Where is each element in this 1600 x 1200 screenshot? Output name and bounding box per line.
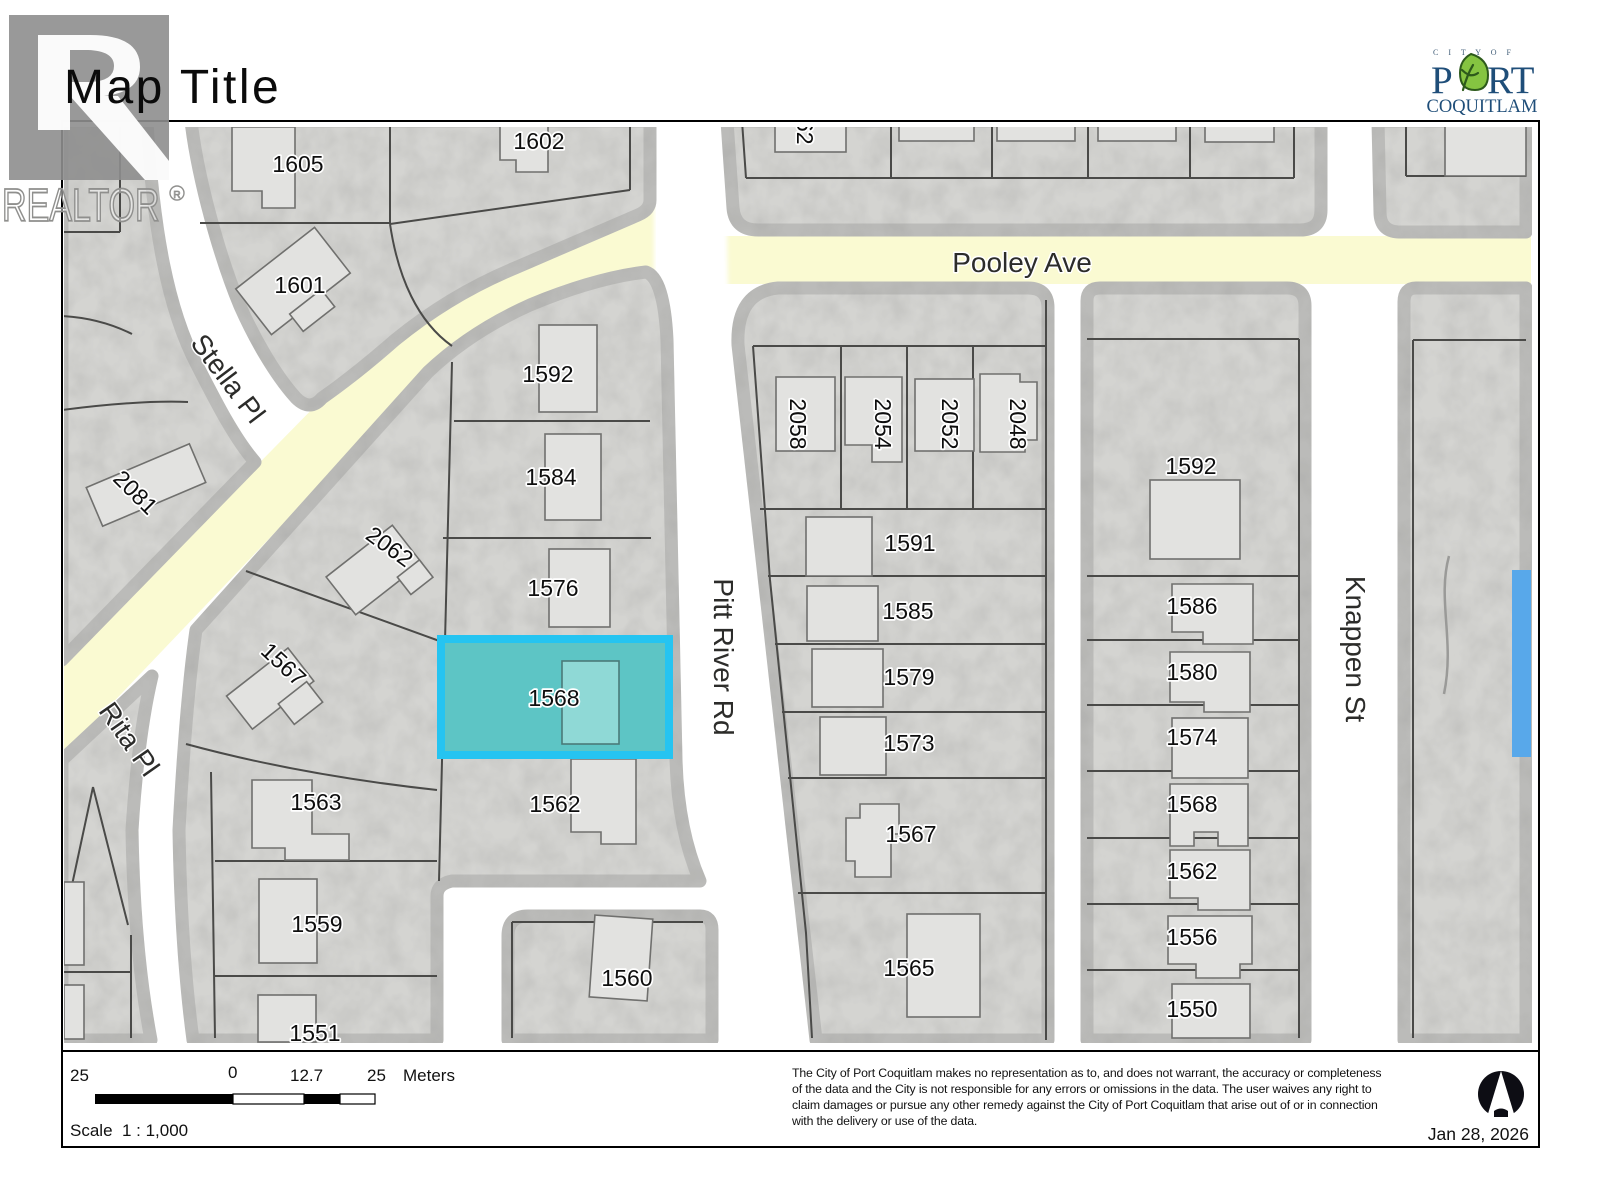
svg-text:1573: 1573: [883, 730, 934, 756]
svg-text:1584: 1584: [525, 464, 576, 490]
svg-text:1592: 1592: [1165, 453, 1216, 479]
svg-text:of the data and the City is no: of the data and the City is not responsi…: [792, 1082, 1372, 1096]
svg-text:0: 0: [228, 1063, 237, 1082]
svg-text:The City of Port Coquitlam mak: The City of Port Coquitlam makes no repr…: [792, 1066, 1381, 1080]
svg-text:2054: 2054: [870, 398, 896, 449]
svg-text:2048: 2048: [1005, 398, 1031, 449]
svg-text:1559: 1559: [291, 911, 342, 937]
svg-text:1568: 1568: [1166, 791, 1217, 817]
svg-text:2058: 2058: [785, 398, 811, 449]
svg-text:1586: 1586: [1166, 593, 1217, 619]
svg-text:1585: 1585: [882, 598, 933, 624]
svg-text:RT: RT: [1487, 59, 1535, 102]
svg-text:1580: 1580: [1166, 659, 1217, 685]
svg-text:25: 25: [70, 1066, 89, 1085]
svg-text:2052: 2052: [937, 398, 963, 449]
svg-text:Pooley Ave: Pooley Ave: [952, 247, 1092, 278]
svg-text:1568: 1568: [528, 685, 579, 711]
svg-text:1551: 1551: [289, 1020, 340, 1046]
svg-text:1574: 1574: [1166, 724, 1217, 750]
svg-text:Map Title: Map Title: [64, 61, 281, 114]
svg-text:1567: 1567: [885, 821, 936, 847]
svg-text:1602: 1602: [513, 128, 564, 154]
svg-text:1565: 1565: [883, 955, 934, 981]
svg-text:1591: 1591: [884, 530, 935, 556]
svg-text:COQUITLAM: COQUITLAM: [1427, 97, 1538, 117]
svg-text:1562: 1562: [1166, 858, 1217, 884]
svg-text:1560: 1560: [601, 965, 652, 991]
svg-text:Pitt River Rd: Pitt River Rd: [708, 578, 739, 735]
svg-text:1601: 1601: [274, 272, 325, 298]
svg-text:Meters: Meters: [403, 1066, 455, 1085]
svg-text:1550: 1550: [1166, 996, 1217, 1022]
svg-text:1562: 1562: [529, 791, 580, 817]
svg-text:P: P: [1431, 59, 1453, 102]
svg-text:R: R: [173, 190, 180, 201]
svg-text:Jan 28, 2026: Jan 28, 2026: [1428, 1124, 1529, 1144]
svg-text:REALTOR: REALTOR: [2, 179, 160, 231]
svg-text:1556: 1556: [1166, 924, 1217, 950]
svg-text:1563: 1563: [290, 789, 341, 815]
svg-text:1605: 1605: [272, 151, 323, 177]
svg-text:1576: 1576: [527, 575, 578, 601]
svg-text:1592: 1592: [522, 361, 573, 387]
svg-text:with the delivery or use of th: with the delivery or use of the data.: [791, 1114, 977, 1128]
svg-text:Knappen St: Knappen St: [1340, 576, 1371, 723]
svg-text:25: 25: [367, 1066, 386, 1085]
svg-text:Scale 1 : 1,000: Scale 1 : 1,000: [70, 1121, 188, 1140]
svg-text:claim damages or pursue any ot: claim damages or pursue any other remedy…: [792, 1098, 1378, 1112]
svg-text:1579: 1579: [883, 664, 934, 690]
svg-text:12.7: 12.7: [290, 1066, 323, 1085]
